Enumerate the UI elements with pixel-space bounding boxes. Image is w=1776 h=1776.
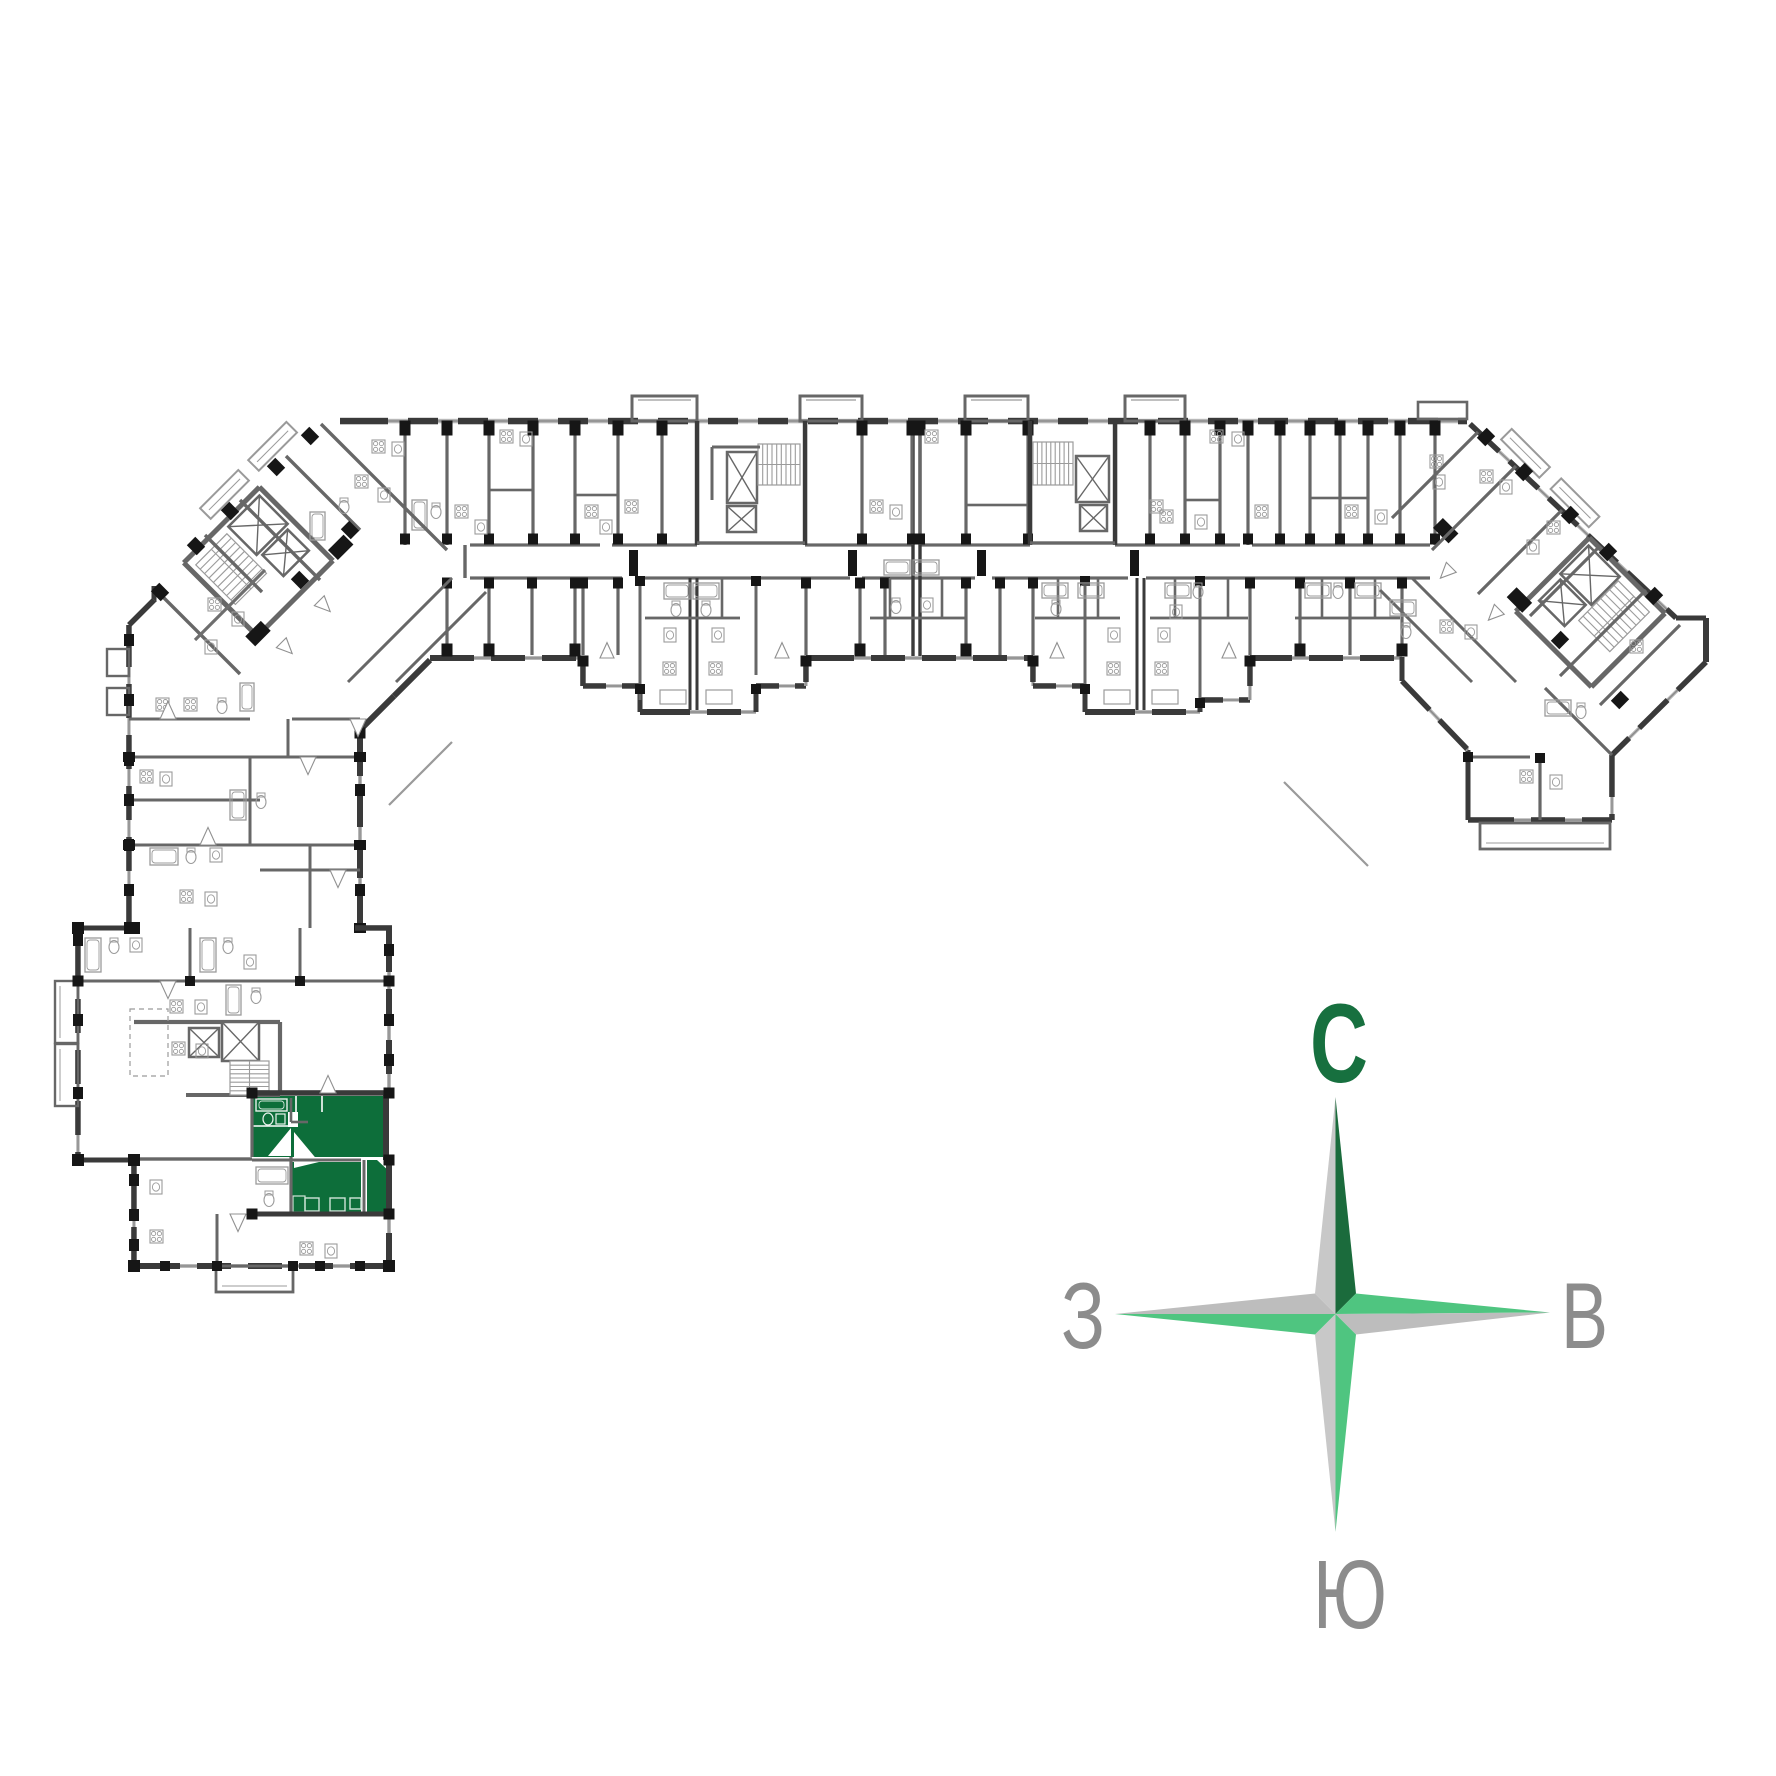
svg-text:В: В bbox=[1561, 1263, 1608, 1368]
svg-text:С: С bbox=[1310, 981, 1368, 1106]
svg-text:З: З bbox=[1061, 1263, 1105, 1368]
svg-text:Ю: Ю bbox=[1313, 1540, 1387, 1649]
